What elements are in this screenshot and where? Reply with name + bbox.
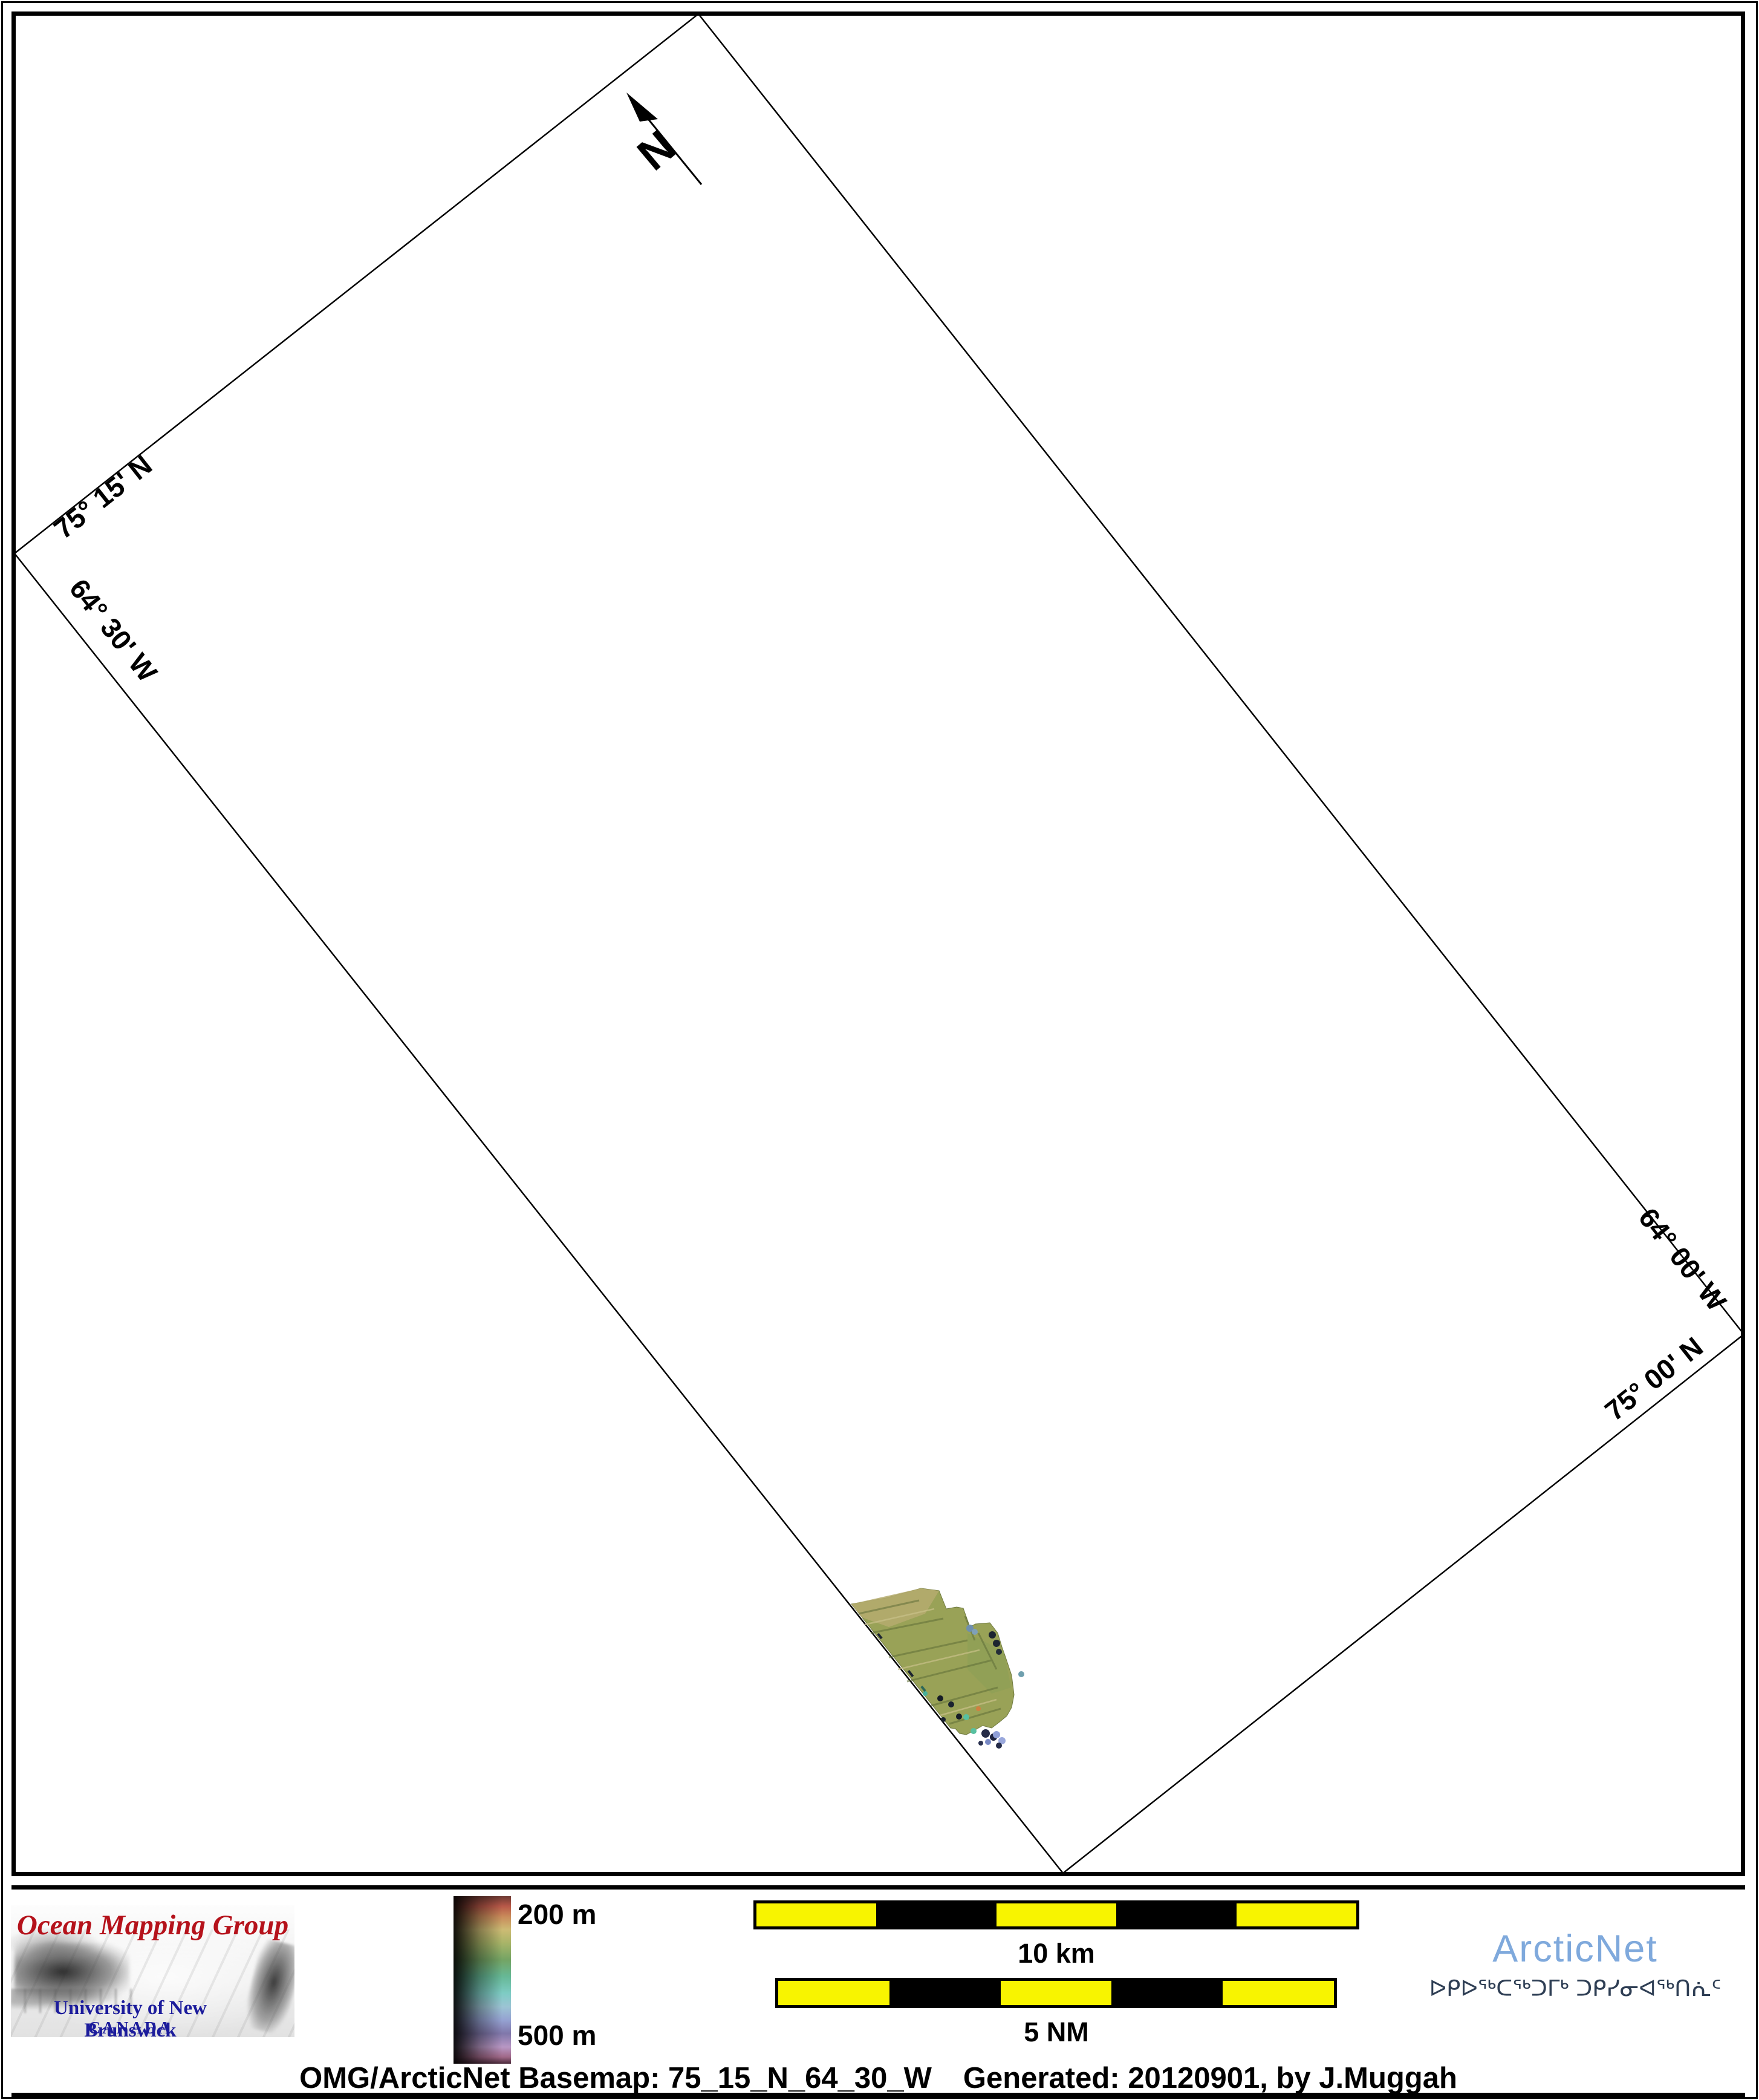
north-arrow-label: N: [628, 120, 684, 180]
basemap-caption: OMG/ArcticNet Basemap: 75_15_N_64_30_W G…: [11, 2061, 1745, 2095]
colorbar-bottom-label: 500 m: [518, 2019, 596, 2052]
scalebar-segment: [756, 1903, 876, 1926]
omg-logo-country: CANADA: [11, 2019, 250, 2037]
scalebar-km-label: 10 km: [951, 1938, 1162, 1969]
graticule-label-lon-left: 64° 30' W: [63, 573, 164, 688]
graticule-label-lon-right: 64° 00' W: [1633, 1202, 1733, 1317]
graticule-label-lat-top-left: 75° 15' N: [48, 449, 158, 545]
depth-colorbar: [454, 1896, 511, 2064]
scalebar-segment: [876, 1903, 996, 1926]
footer-divider-rule: [11, 1885, 1745, 1890]
scalebar-segment: [1111, 1981, 1223, 2005]
bathymetry-patch: [851, 1588, 1024, 1749]
graticule-label-lat-bottom-right: 75° 00' N: [1599, 1331, 1709, 1427]
scalebar-segment: [1237, 1903, 1356, 1926]
scalebar-segment: [889, 1981, 1001, 2005]
omg-logo-title: Ocean Mapping Group: [11, 1909, 294, 1942]
scalebar-segment: [1116, 1903, 1236, 1926]
omg-logo: Ocean Mapping Group University of New Br…: [11, 1905, 294, 2037]
caption-generated-info: Generated: 20120901, by J.Muggah: [963, 2061, 1457, 2095]
north-arrow-head-icon: [626, 93, 658, 122]
footer-bottom-rule: [11, 2093, 1745, 2098]
north-arrow: N: [626, 93, 701, 184]
map-canvas: 75° 15' N 64° 30' W 64° 00' W 75° 00' N …: [0, 0, 1759, 2100]
arcticnet-inuktitut-text: ᐅᑭᐅᖅᑕᖅᑐᒥᒃ ᑐᑭᓯᓂᐊᖅᑎᕇᑦ: [1396, 1975, 1755, 2001]
arcticnet-wordmark: ArcticNet: [1396, 1927, 1755, 1971]
scalebar-segment: [1001, 1981, 1112, 2005]
scalebar-segment: [1223, 1981, 1334, 2005]
arcticnet-logo: ArcticNet ᐅᑭᐅᖅᑕᖅᑐᒥᒃ ᑐᑭᓯᓂᐊᖅᑎᕇᑦ: [1396, 1927, 1755, 2001]
scalebar-nm-label: 5 NM: [951, 2017, 1162, 2048]
scalebar-kilometres: [753, 1900, 1359, 1929]
basemap-sheet: 75° 15' N 64° 30' W 64° 00' W 75° 00' N …: [0, 0, 1759, 2100]
scalebar-segment: [997, 1903, 1116, 1926]
scalebar-segment: [778, 1981, 889, 2005]
scalebar-nautical-miles: [775, 1978, 1337, 2008]
survey-area-outline: [15, 14, 1744, 1873]
colorbar-top-label: 200 m: [518, 1898, 596, 1931]
caption-basemap-id: OMG/ArcticNet Basemap: 75_15_N_64_30_W: [299, 2061, 932, 2095]
